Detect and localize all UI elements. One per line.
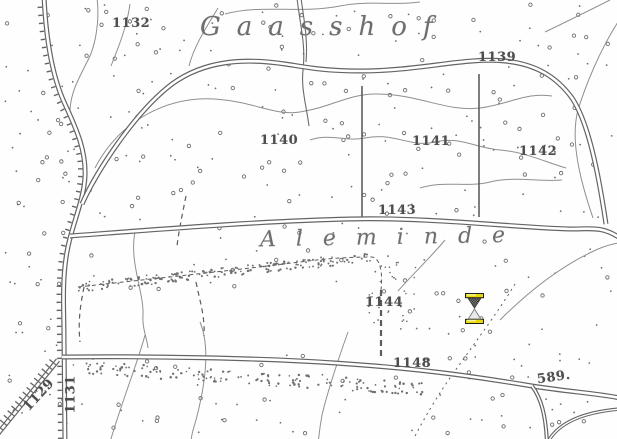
hourglass-bottom-cap	[466, 319, 484, 323]
map-drawing	[0, 0, 617, 439]
road-hatching-ticks	[0, 0, 85, 439]
hourglass-cap-highlight	[467, 294, 476, 295]
parcel-label-1131: 1131	[65, 382, 78, 414]
parcel-label-1144: 1144	[365, 296, 403, 309]
hourglass-lower-glass	[468, 309, 481, 319]
place-name-aleminde: Aleminde	[260, 225, 525, 252]
parcel-label-1143: 1143	[378, 204, 416, 217]
parcel-label-1140: 1140	[260, 134, 298, 147]
hourglass-upper-sand	[468, 298, 481, 308]
hourglass-top-cap	[466, 294, 484, 298]
parcel-label-1148: 1148	[393, 357, 431, 370]
parcel-label-1142: 1142	[519, 145, 557, 158]
parcel-label-1141: 1141	[412, 135, 450, 148]
hourglass-cap-highlight-2	[467, 320, 476, 321]
parcel-label-1139: 1139	[478, 51, 516, 64]
parcel-label-1132: 1132	[112, 17, 150, 30]
hourglass-cursor	[464, 293, 485, 324]
map-viewport[interactable]: Gaasshof Aleminde 1132 1139 1140 1141 11…	[0, 0, 617, 439]
place-name-gaasshof: Gaasshof	[200, 14, 448, 40]
